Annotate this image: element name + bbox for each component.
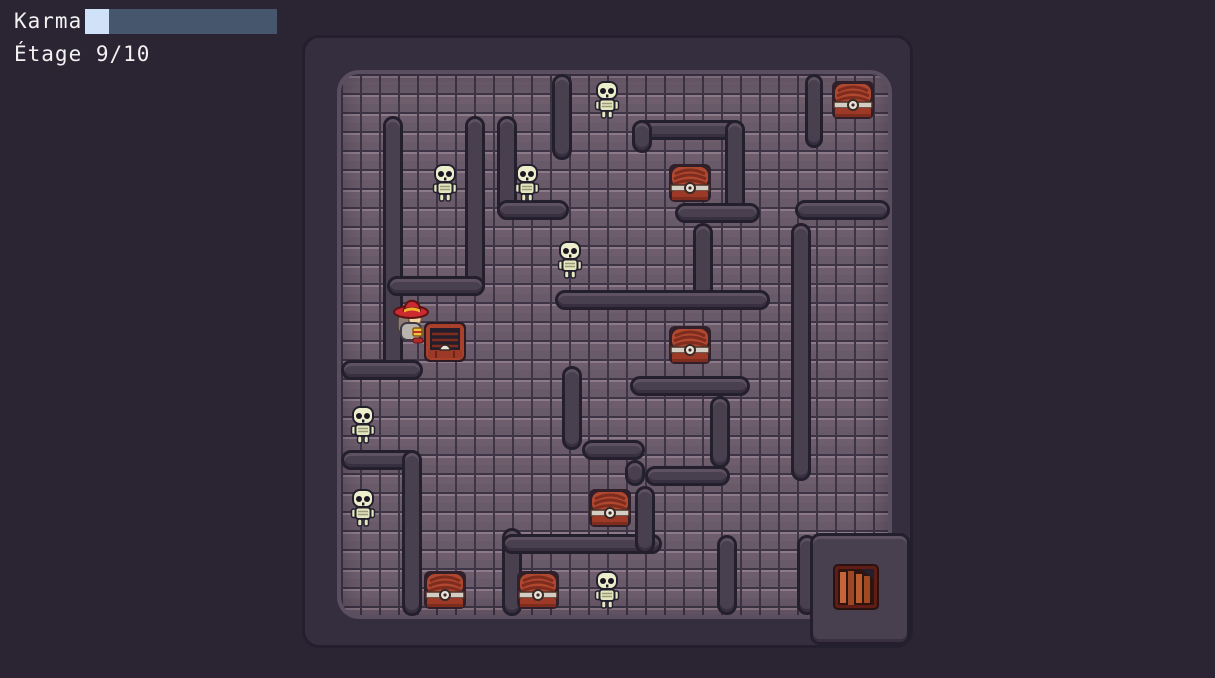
maze-wall	[497, 200, 569, 220]
maze-wall	[693, 223, 713, 300]
maze-wall	[555, 290, 770, 310]
maze-wall	[630, 376, 750, 396]
karma-label: Karma	[14, 8, 82, 34]
floor-label: Étage 9/10	[14, 41, 150, 67]
maze-wall	[552, 74, 572, 160]
karma-bar-fill	[85, 9, 109, 34]
game-screen: { "hud": { "karma_label": "Karma", "karm…	[0, 0, 1215, 678]
maze-wall	[635, 486, 655, 554]
skeleton-enemy[interactable]	[594, 81, 620, 119]
maze-wall	[805, 74, 823, 148]
treasure-chest[interactable]	[587, 487, 633, 529]
maze-wall	[675, 203, 760, 223]
skeleton-enemy[interactable]	[594, 571, 620, 609]
dungeon-map[interactable]	[305, 38, 910, 645]
maze-wall	[791, 223, 811, 481]
maze-wall	[402, 450, 422, 616]
player-character[interactable]	[389, 297, 435, 347]
treasure-chest[interactable]	[422, 569, 468, 611]
maze-wall	[625, 460, 645, 486]
karma-bar	[85, 9, 277, 34]
maze-wall	[387, 276, 485, 296]
maze-wall	[710, 396, 730, 468]
exit-trapdoor[interactable]	[833, 564, 879, 610]
hud: Karma Étage 9/10	[0, 0, 300, 80]
skeleton-enemy[interactable]	[514, 164, 540, 202]
treasure-chest[interactable]	[515, 569, 561, 611]
maze-wall	[341, 360, 423, 380]
treasure-chest[interactable]	[667, 162, 713, 204]
skeleton-enemy[interactable]	[350, 406, 376, 444]
maze-wall	[645, 466, 730, 486]
maze-wall	[717, 535, 737, 615]
maze-wall	[795, 200, 890, 220]
maze-wall	[582, 440, 645, 460]
maze-wall	[632, 120, 652, 153]
skeleton-enemy[interactable]	[350, 489, 376, 527]
skeleton-enemy[interactable]	[557, 241, 583, 279]
treasure-chest[interactable]	[667, 324, 713, 366]
maze-wall	[465, 116, 485, 296]
skeleton-enemy[interactable]	[432, 164, 458, 202]
treasure-chest[interactable]	[830, 79, 876, 121]
maze-wall	[562, 366, 582, 450]
